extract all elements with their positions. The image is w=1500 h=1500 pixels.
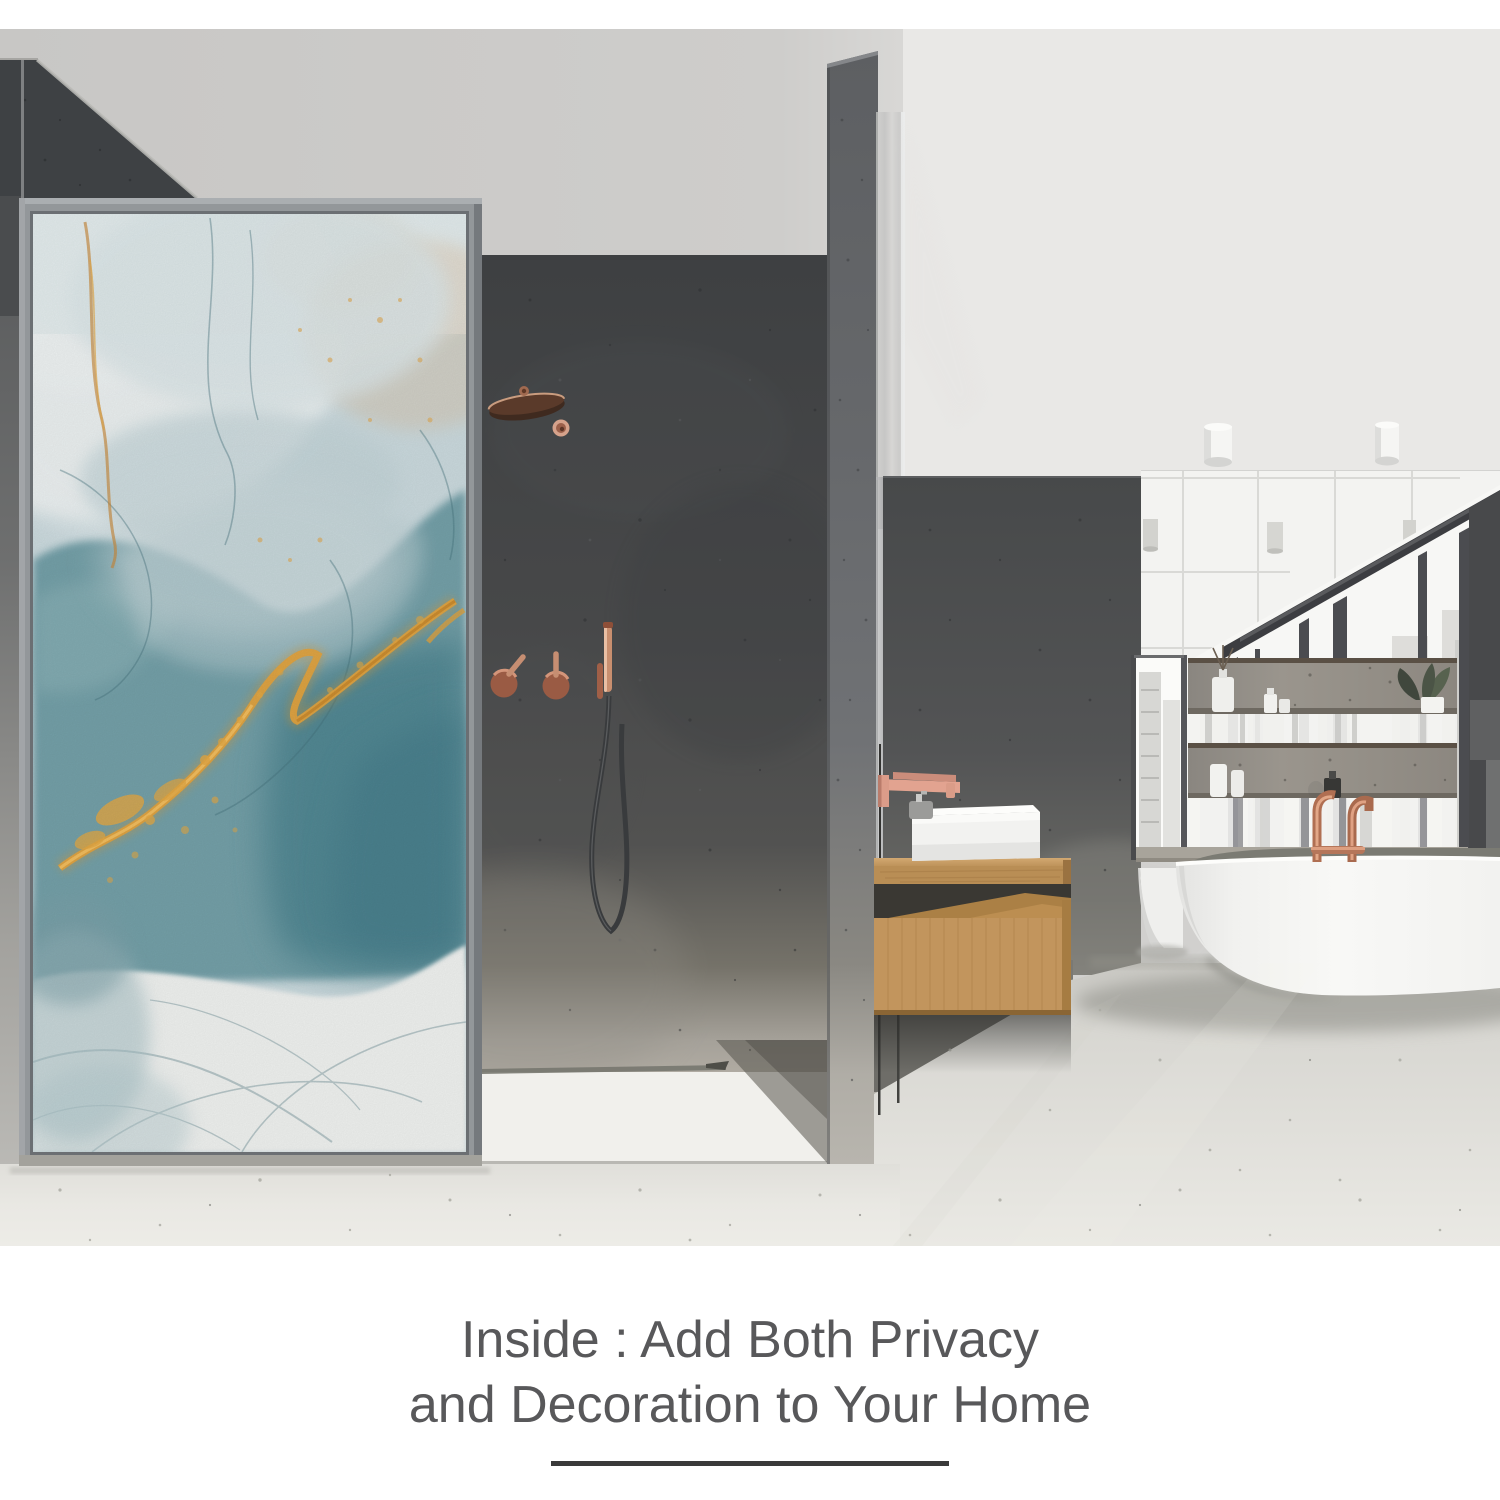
svg-text:Inside : Add Both Privacy: Inside : Add Both Privacy	[461, 1311, 1039, 1369]
svg-text:and Decoration to Your Home: and Decoration to Your Home	[409, 1376, 1091, 1434]
